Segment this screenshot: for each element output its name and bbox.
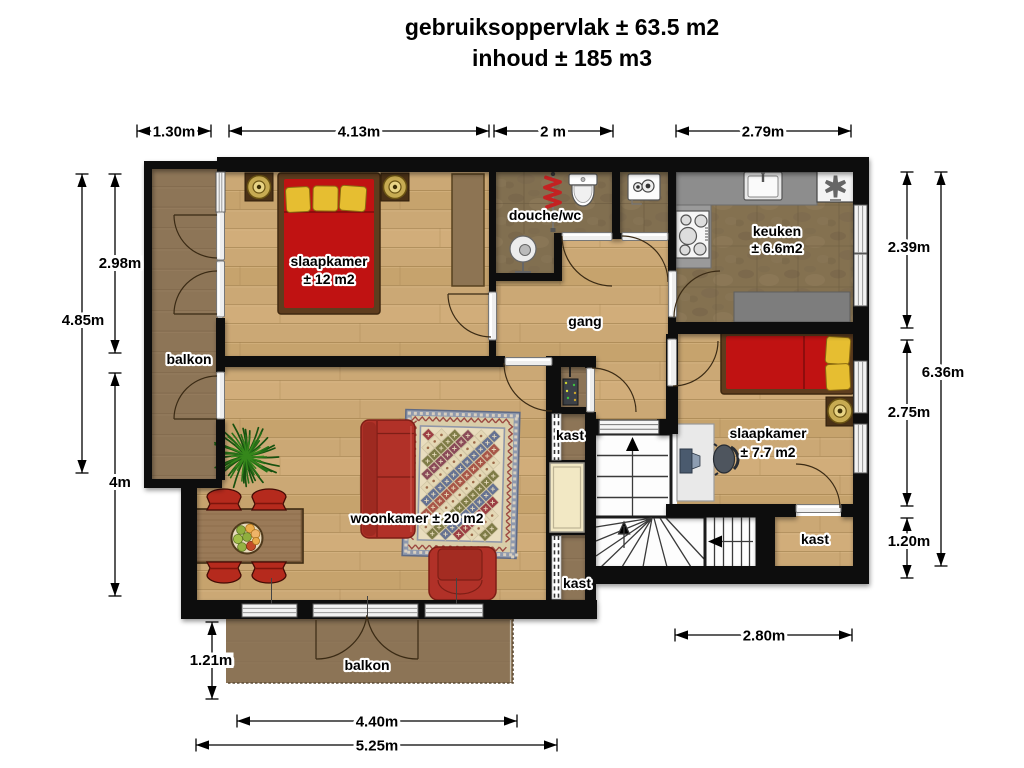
svg-text:kast: kast	[556, 427, 584, 443]
svg-text:± 7.7 m2: ± 7.7 m2	[740, 444, 795, 460]
svg-text:balkon: balkon	[166, 351, 211, 367]
svg-text:2.79m: 2.79m	[742, 124, 785, 141]
svg-text:4m: 4m	[109, 474, 131, 491]
svg-text:5.25m: 5.25m	[356, 738, 399, 755]
svg-text:4.85m: 4.85m	[62, 312, 105, 329]
svg-text:kast: kast	[801, 531, 829, 547]
svg-text:2.75m: 2.75m	[888, 404, 931, 421]
svg-text:± 12 m2: ± 12 m2	[303, 271, 354, 287]
svg-text:balkon: balkon	[344, 657, 389, 673]
svg-text:gebruiksoppervlak ± 63.5 m2: gebruiksoppervlak ± 63.5 m2	[405, 14, 719, 40]
svg-text:4.13m: 4.13m	[338, 124, 381, 141]
svg-text:keuken: keuken	[753, 223, 801, 239]
svg-text:2.80m: 2.80m	[743, 628, 786, 645]
svg-text:2.98m: 2.98m	[99, 255, 142, 272]
svg-text:2 m: 2 m	[540, 124, 566, 141]
svg-text:1.20m: 1.20m	[888, 533, 931, 550]
svg-text:1.21m: 1.21m	[190, 652, 233, 669]
svg-text:6.36m: 6.36m	[922, 364, 965, 381]
svg-text:4.40m: 4.40m	[356, 714, 399, 731]
svg-text:± 6.6m2: ± 6.6m2	[751, 240, 802, 256]
svg-text:2.39m: 2.39m	[888, 239, 931, 256]
svg-text:gang: gang	[568, 313, 601, 329]
svg-text:douche/wc: douche/wc	[509, 207, 582, 223]
svg-text:inhoud ± 185 m3: inhoud ± 185 m3	[472, 45, 652, 71]
svg-text:woonkamer ± 20 m2: woonkamer ± 20 m2	[350, 510, 484, 526]
svg-text:1.30m: 1.30m	[153, 124, 196, 141]
svg-text:kast: kast	[563, 575, 591, 591]
svg-text:slaapkamer: slaapkamer	[729, 425, 807, 441]
svg-text:slaapkamer: slaapkamer	[290, 253, 368, 269]
